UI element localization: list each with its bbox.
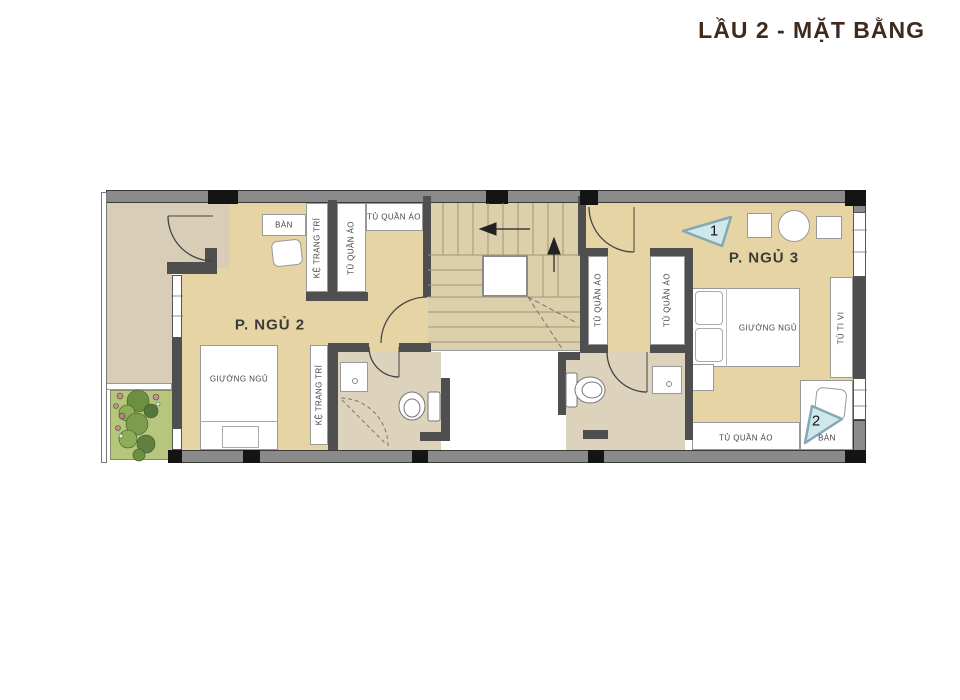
- wall-bath1-top-right: [399, 343, 431, 352]
- wall-bedroom3-west: [685, 250, 693, 440]
- pillow-1: [695, 291, 723, 325]
- window-right-upper: [853, 212, 866, 277]
- window-bedroom2-west-low: [172, 428, 182, 450]
- shelf-lower-label: KỆ TRANG TRÍ: [315, 365, 324, 426]
- window-right-lower: [853, 378, 866, 420]
- wall-right-mid: [853, 277, 866, 378]
- wall-bath2-bottom-stub: [583, 430, 608, 439]
- column: [412, 450, 428, 463]
- boundary-left: [101, 192, 107, 463]
- wall-hallcloset-west: [580, 256, 588, 345]
- sink2-drain-icon: [666, 381, 672, 387]
- wall-bath1-east: [441, 378, 450, 432]
- column: [168, 450, 182, 463]
- wall-shelf-lower: [328, 343, 338, 450]
- wall-bath1-top-left: [338, 343, 369, 352]
- table-circle-bedroom3: [778, 210, 810, 242]
- column: [486, 190, 508, 204]
- wardrobe-hall-left-label: TỦ QUẦN ÁO: [594, 273, 603, 327]
- marker-1: 1: [710, 223, 718, 240]
- desk-bedroom2-label: BÀN: [275, 221, 293, 230]
- sink-bathroom1: [340, 362, 368, 392]
- marker-2: 2: [812, 413, 820, 430]
- wall-bath2-top-stub: [558, 352, 580, 360]
- bed-bedroom2-fold: [222, 426, 259, 448]
- floor-plan-page: { "title": "LẦU 2 - MẶT BẰNG", "palette"…: [0, 0, 960, 700]
- desk-chair-bedroom2: [271, 239, 304, 268]
- column: [845, 190, 866, 206]
- column: [588, 450, 604, 463]
- column: [845, 450, 866, 463]
- floor-hallway: [441, 351, 558, 450]
- column: [208, 190, 238, 204]
- wall-hallcloset-bottom-b: [650, 345, 686, 353]
- wall-stairs-east: [578, 196, 586, 256]
- sink1-drain-icon: [352, 378, 358, 384]
- wall-closet-divider: [328, 200, 337, 295]
- column: [243, 450, 260, 463]
- wall-balcony-L-stub: [205, 248, 217, 263]
- wall-bottom: [175, 450, 866, 463]
- bed-bedroom3-line: [726, 288, 727, 367]
- wardrobe-hall-right-label: TỦ QUẦN ÁO: [663, 273, 672, 327]
- wall-right-bottom: [853, 420, 866, 452]
- window-bedroom2-west: [172, 275, 182, 338]
- wall-bath1-stub: [420, 432, 450, 441]
- wall-hallcloset-bottom-a: [580, 345, 608, 353]
- wardrobe-bedroom2-side-label: TỦ QUẦN ÁO: [347, 221, 356, 275]
- pillow-2: [695, 328, 723, 362]
- balcony-threshold: [104, 383, 172, 390]
- tv-cabinet-label: TỦ TI VI: [837, 312, 846, 345]
- stair-void: [482, 255, 528, 297]
- wall-hallcloset-top-a: [580, 248, 608, 256]
- wardrobe-bedroom3-label: TỦ QUẦN ÁO: [719, 434, 773, 443]
- bed-bedroom2-line: [200, 421, 278, 422]
- page-title: LẦU 2 - MẶT BẰNG: [698, 17, 925, 44]
- wall-bath2-west: [558, 358, 566, 415]
- table-square-right-bedroom3: [816, 216, 842, 239]
- wall-stairs-west: [423, 196, 431, 297]
- bed-bedroom2-label: GIƯỜNG NGỦ: [210, 375, 268, 384]
- garden: [110, 390, 173, 460]
- room-label-bedroom3: P. NGỦ 3: [729, 250, 799, 267]
- wardrobe-bedroom2-top-label: TỦ QUẦN ÁO: [367, 213, 421, 222]
- table-square-left-bedroom3: [747, 213, 772, 238]
- wall-closet-bottom: [306, 292, 368, 301]
- desk-bedroom3-label: BÀN: [818, 434, 836, 443]
- column: [580, 190, 598, 205]
- room-label-bedroom2: P. NGỦ 2: [235, 317, 305, 334]
- shelf-upper-label: KỆ TRANG TRÍ: [313, 218, 322, 279]
- sink-bathroom2: [652, 366, 682, 394]
- bed-bedroom3-label: GIƯỜNG NGỦ: [739, 324, 797, 333]
- wall-balcony-L-horizontal: [167, 262, 217, 274]
- floor-balcony-left: [106, 203, 172, 385]
- wall-bedroom2-west: [172, 338, 182, 430]
